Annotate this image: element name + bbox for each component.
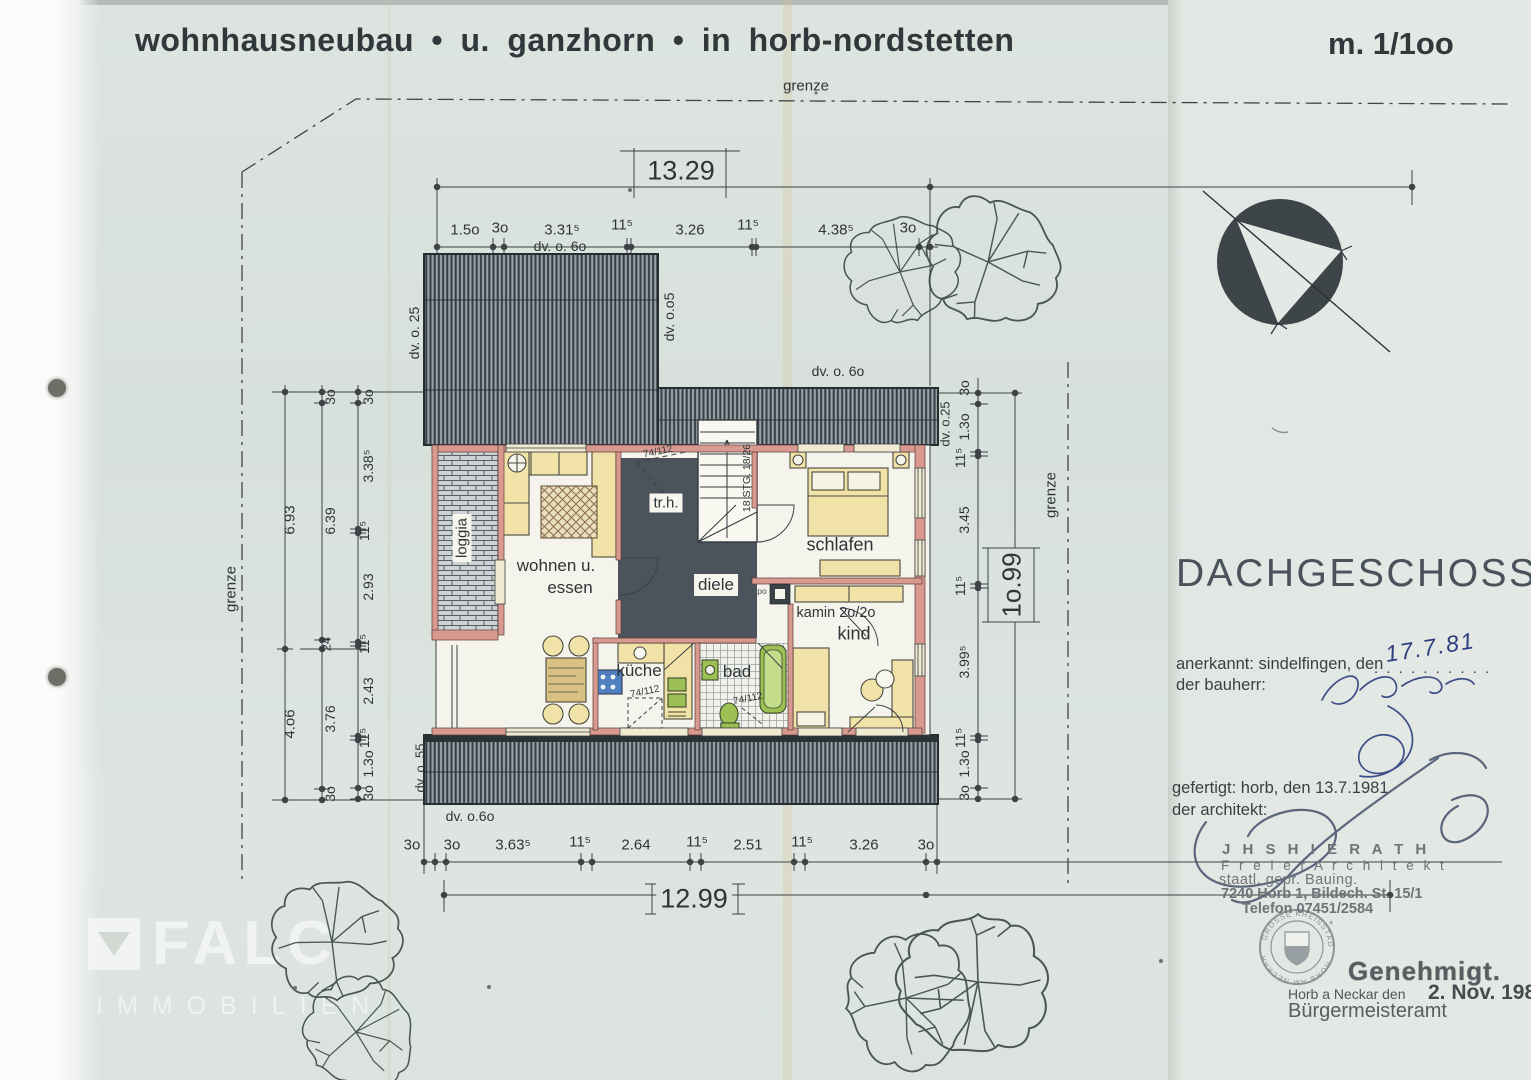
dim-right-5: 3.99⁵: [956, 645, 972, 678]
dim-right-8: 3o: [956, 785, 972, 801]
dim-li-0: 3o: [360, 389, 376, 405]
scale-label: m. 1/1oo: [1328, 26, 1454, 62]
grenze-left-label: grenze: [223, 566, 240, 612]
dim-top-2: 3.31⁵: [544, 222, 579, 239]
dim-right-3: 3.45: [956, 506, 972, 533]
dim-li-3: 2.93: [360, 573, 376, 600]
dim-lm-0: 3o: [322, 389, 338, 405]
dim-top-1: 3o: [492, 220, 509, 237]
dim-top-7: 3o: [900, 220, 917, 237]
dim-li-8: 3o: [360, 785, 376, 801]
dim-right-7: 1.3o: [956, 750, 972, 777]
roof-label-right: dv. o.25: [938, 401, 953, 446]
dim-lo-1: 4.o6: [282, 709, 299, 738]
roof-label-bottom-left: dv. o. 55: [413, 744, 428, 793]
roof-label-band: dv. o. 6o: [812, 363, 865, 379]
dim-top-5: 11⁵: [737, 217, 759, 234]
dim-top-4: 3.26: [675, 222, 704, 239]
dim-right-0: 3o: [956, 380, 972, 396]
dim-top-3: 11⁵: [611, 217, 633, 234]
room-label-bad: bad: [723, 662, 751, 682]
dim-li-5: 2.43: [360, 677, 376, 704]
dim-bot-1: 3o: [444, 837, 461, 854]
kamin-annotation: kamin 2o/2o: [797, 605, 876, 621]
room-label-wohnen-1: wohnen u.: [517, 556, 595, 576]
dim-bot-2: 3.63⁵: [495, 837, 530, 854]
architekt-label: der architekt:: [1172, 801, 1267, 820]
roof-label-left: dv. o. 25: [406, 307, 422, 360]
seal-star: *: [1329, 919, 1334, 931]
bauherr-signature: [1322, 676, 1474, 777]
room-label-loggia: loggia: [453, 514, 472, 562]
architect-stamp-phone: Telefon 07451/2584: [1242, 901, 1373, 917]
architect-stamp-title: F r e i e r A r c h i t e k t: [1221, 858, 1447, 873]
dim-right-1: 1.3o: [956, 413, 972, 440]
roof-label-step: dv. o.o5: [661, 293, 677, 342]
roof-label-top-left: dv. o. 6o: [534, 238, 587, 254]
dim-lm-1: 6.39: [322, 507, 338, 534]
dim-bot-7: 11⁵: [791, 834, 813, 851]
dim-right-total: 1o.99: [997, 548, 1028, 621]
room-label-diele: diele: [694, 574, 738, 596]
project-title: wohnhausneubau • u. ganzhorn • in horb-n…: [135, 22, 1014, 59]
dim-right-2: 11⁵: [952, 448, 968, 468]
dim-lo-0: 6.93: [282, 505, 299, 534]
dim-right-6: 11⁵: [952, 728, 968, 748]
dim-li-7: 1.3o: [360, 750, 376, 777]
roof-label-bottom: dv. o.6o: [446, 808, 495, 824]
dim-lm-3: 3.76: [322, 705, 338, 732]
gefertigt-label: gefertigt: horb, den 13.7.1981: [1172, 779, 1389, 798]
stairs-annotation: 18 STG. 18/26: [741, 444, 753, 512]
dim-li-2: 11⁵: [356, 521, 372, 541]
dim-bot-9: 3o: [918, 837, 935, 854]
room-label-kueche: küche: [616, 661, 661, 681]
dim-top-6: 4.38⁵: [818, 222, 853, 239]
dim-bottom-total: 12.99: [656, 884, 732, 915]
dim-bot-4: 2.64: [621, 837, 650, 854]
approved-office: Bürgermeisteramt: [1288, 1000, 1447, 1023]
room-label-schlafen: schlafen: [806, 535, 873, 556]
dim-bot-6: 2.51: [733, 837, 762, 854]
north-arrow-icon: [1203, 191, 1390, 352]
dim-bot-0: 3o: [404, 837, 421, 854]
blueprint-sheet: FALC IMMOBILIEN: [0, 0, 1531, 1080]
anerkannt-label: anerkannt: sindelfingen, den: [1176, 655, 1383, 674]
room-label-kind: kind: [837, 624, 870, 645]
dim-bot-8: 3.26: [849, 837, 878, 854]
dim-lm-4: 3o: [322, 786, 338, 802]
dim-li-1: 3.38⁵: [360, 449, 376, 482]
grenze-right-label: grenze: [1043, 472, 1060, 518]
dim-top-0: 1.5o: [450, 222, 479, 239]
architect-stamp-address: 7240 Horb 1, Bildech. St. 15/1: [1221, 886, 1422, 902]
dim-bot-3: 11⁵: [569, 834, 591, 851]
dim-right-4: 11⁵: [952, 576, 968, 596]
grenze-top-label: grenze: [783, 78, 829, 95]
dim-top-total: 13.29: [643, 156, 719, 187]
dim-li-6: 11⁵: [356, 728, 372, 748]
architect-stamp-name: J H S H I E R A T H: [1222, 841, 1430, 858]
dim-lm-2: 24: [319, 637, 334, 651]
dim-bot-5: 11⁵: [686, 834, 708, 851]
floor-title: DACHGESCHOSS: [1176, 552, 1531, 596]
floor-plan-drawing: GROSSE KREISSTADT HORB AM NECKAR *: [0, 0, 1531, 1080]
bauherr-label: der bauherr:: [1176, 676, 1266, 695]
room-label-wohnen-2: essen: [547, 578, 592, 598]
po-annotation: po: [757, 586, 766, 596]
dim-li-4: 11⁵: [356, 634, 372, 654]
room-label-trh: tr.h.: [649, 494, 682, 513]
